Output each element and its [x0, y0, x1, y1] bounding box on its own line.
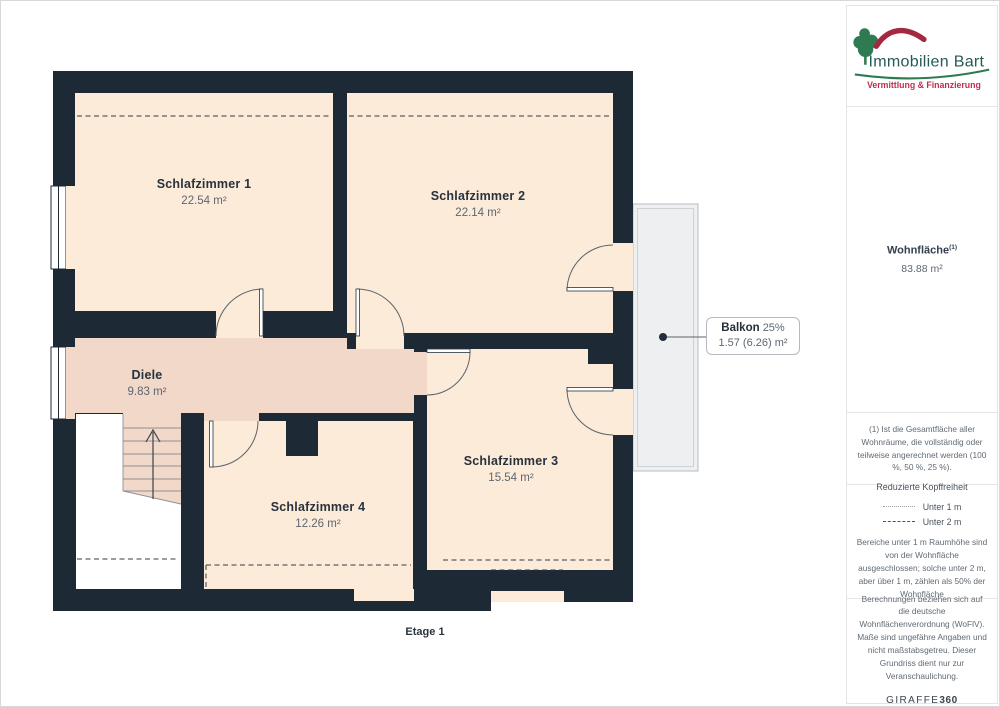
legend-title: Reduzierte Kopffreiheit [876, 482, 967, 492]
room-area: 22.14 m² [431, 206, 526, 221]
roof-icon [876, 31, 924, 47]
footnote-section: (1) Ist die Gesamtfläche aller Wohnräume… [847, 412, 997, 484]
living-area-section: Wohnfläche(1) 83.88 m² [847, 106, 997, 412]
balcony-callout-area: 1.57 (6.26) m² [707, 336, 799, 351]
room-label-schlafzimmer3: Schlafzimmer 3 15.54 m² [464, 453, 559, 486]
room-area: 15.54 m² [464, 471, 559, 486]
balcony-callout-title: Balkon 25% [707, 321, 799, 336]
legend-item-under-2m: Unter 2 m [883, 517, 962, 527]
room-label-schlafzimmer4: Schlafzimmer 4 12.26 m² [271, 499, 366, 532]
room-area: 22.54 m² [157, 194, 252, 209]
legend-label: Unter 2 m [923, 517, 962, 527]
room-label-diele: Diele 9.83 m² [128, 367, 167, 400]
living-area-footnote-marker: (1) [949, 244, 957, 251]
room-label-schlafzimmer2: Schlafzimmer 2 22.14 m² [431, 188, 526, 221]
disclaimer-section: Berechnungen beziehen sich auf die deuts… [847, 598, 997, 699]
room-name: Schlafzimmer 3 [464, 453, 559, 469]
footnote-text: (1) Ist die Gesamtfläche aller Wohnräume… [856, 423, 988, 474]
brand-bold: 360 [939, 695, 958, 706]
headroom-legend-section: Reduzierte Kopffreiheit Unter 1 m Unter … [847, 484, 997, 598]
legend-label: Unter 1 m [923, 502, 962, 512]
window-left-bedroom1 [51, 186, 75, 269]
window-left-hall [51, 347, 75, 419]
living-area-title-text: Wohnfläche [887, 244, 949, 256]
room-name: Schlafzimmer 2 [431, 188, 526, 204]
logo-name-text: Immobilien Bart [868, 53, 984, 71]
floor-label: Etage 1 [405, 626, 444, 638]
dotted-line-icon [883, 506, 915, 507]
disclaimer-text: Berechnungen beziehen sich auf die deuts… [856, 593, 988, 683]
living-area-value: 83.88 m² [901, 263, 942, 275]
room-name: Schlafzimmer 4 [271, 499, 366, 515]
room-name: Schlafzimmer 1 [157, 176, 252, 192]
sidebar: Immobilien Bart Vermittlung & Finanzieru… [846, 5, 998, 704]
room-area: 12.26 m² [271, 517, 366, 532]
giraffe360-brand: GIRAFFE360 [886, 695, 958, 706]
logo-swoosh [855, 70, 989, 79]
balcony-name: Balkon [721, 322, 759, 334]
room-area: 9.83 m² [128, 385, 167, 400]
floorplan-page: Schlafzimmer 1 22.54 m² Schlafzimmer 2 2… [0, 0, 1000, 707]
dashed-line-icon [883, 521, 915, 522]
room-label-schlafzimmer1: Schlafzimmer 1 22.54 m² [157, 176, 252, 209]
brand-light: GIRAFFE [886, 695, 939, 706]
living-area-title: Wohnfläche(1) [887, 244, 957, 257]
balcony-callout: Balkon 25% 1.57 (6.26) m² [706, 317, 800, 355]
legend-item-under-1m: Unter 1 m [883, 502, 962, 512]
agency-logo: Immobilien Bart Vermittlung & Finanzieru… [849, 18, 995, 94]
legend-note: Bereiche unter 1 m Raumhöhe sind von der… [856, 536, 988, 600]
logo-tagline-text: Vermittlung & Finanzierung [867, 80, 981, 90]
balcony-percent: 25% [763, 322, 785, 334]
room-name: Diele [128, 367, 167, 383]
agency-logo-section: Immobilien Bart Vermittlung & Finanzieru… [847, 6, 997, 106]
